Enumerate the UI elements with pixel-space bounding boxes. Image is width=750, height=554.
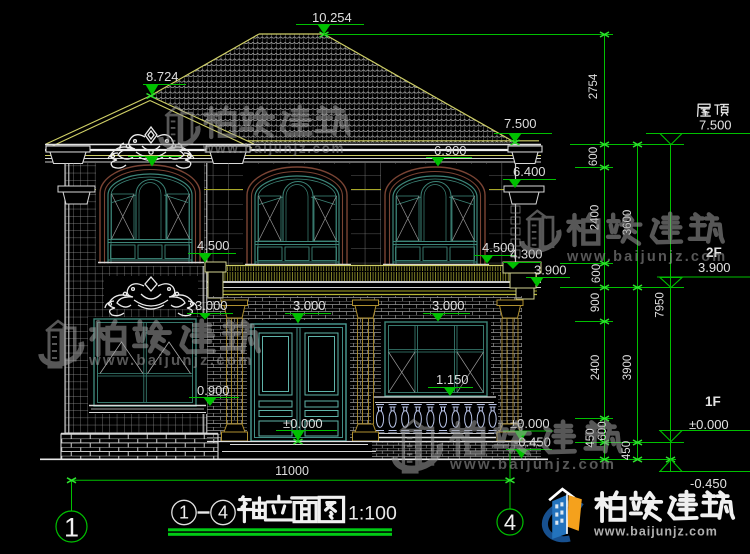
svg-text:2400: 2400 xyxy=(590,355,602,381)
svg-text:1.150: 1.150 xyxy=(436,372,469,387)
svg-text:0.900: 0.900 xyxy=(197,383,230,398)
svg-text:7950: 7950 xyxy=(655,292,667,318)
svg-text:10.254: 10.254 xyxy=(312,10,352,25)
svg-text:2754: 2754 xyxy=(588,73,600,99)
svg-text:www.baijunjz.com: www.baijunjz.com xyxy=(566,249,727,265)
svg-text:3.000: 3.000 xyxy=(195,298,228,313)
svg-text:4: 4 xyxy=(218,503,228,523)
svg-text:4: 4 xyxy=(504,510,516,535)
svg-text:www.baijunjz.com: www.baijunjz.com xyxy=(593,525,718,539)
svg-text:7.500: 7.500 xyxy=(504,116,537,131)
svg-text:1: 1 xyxy=(179,503,189,523)
svg-text:6.900: 6.900 xyxy=(434,143,467,158)
svg-text:1: 1 xyxy=(64,513,79,543)
svg-text:-0.450: -0.450 xyxy=(690,476,727,491)
svg-text:4.500: 4.500 xyxy=(197,238,230,253)
svg-text:6.400: 6.400 xyxy=(513,164,546,179)
svg-text:600: 600 xyxy=(591,264,603,283)
svg-text:11000: 11000 xyxy=(275,464,309,478)
svg-text:±0.000: ±0.000 xyxy=(283,416,323,431)
svg-text:1F: 1F xyxy=(705,394,721,409)
svg-text:8.724: 8.724 xyxy=(146,69,179,84)
svg-text:600: 600 xyxy=(588,147,600,166)
svg-text:3.900: 3.900 xyxy=(534,263,567,278)
svg-text:3.000: 3.000 xyxy=(432,298,465,313)
svg-text:7.500: 7.500 xyxy=(699,118,732,133)
svg-text:www.baijunjz.com: www.baijunjz.com xyxy=(449,456,616,473)
svg-text:www.baijunjz.com: www.baijunjz.com xyxy=(202,141,345,156)
svg-text:www.baijunjz.com: www.baijunjz.com xyxy=(88,352,254,369)
svg-text:900: 900 xyxy=(590,293,602,312)
svg-text:3.000: 3.000 xyxy=(293,298,326,313)
svg-text:1:100: 1:100 xyxy=(348,503,397,525)
svg-text:±0.000: ±0.000 xyxy=(689,417,729,432)
svg-text:3900: 3900 xyxy=(622,355,634,381)
